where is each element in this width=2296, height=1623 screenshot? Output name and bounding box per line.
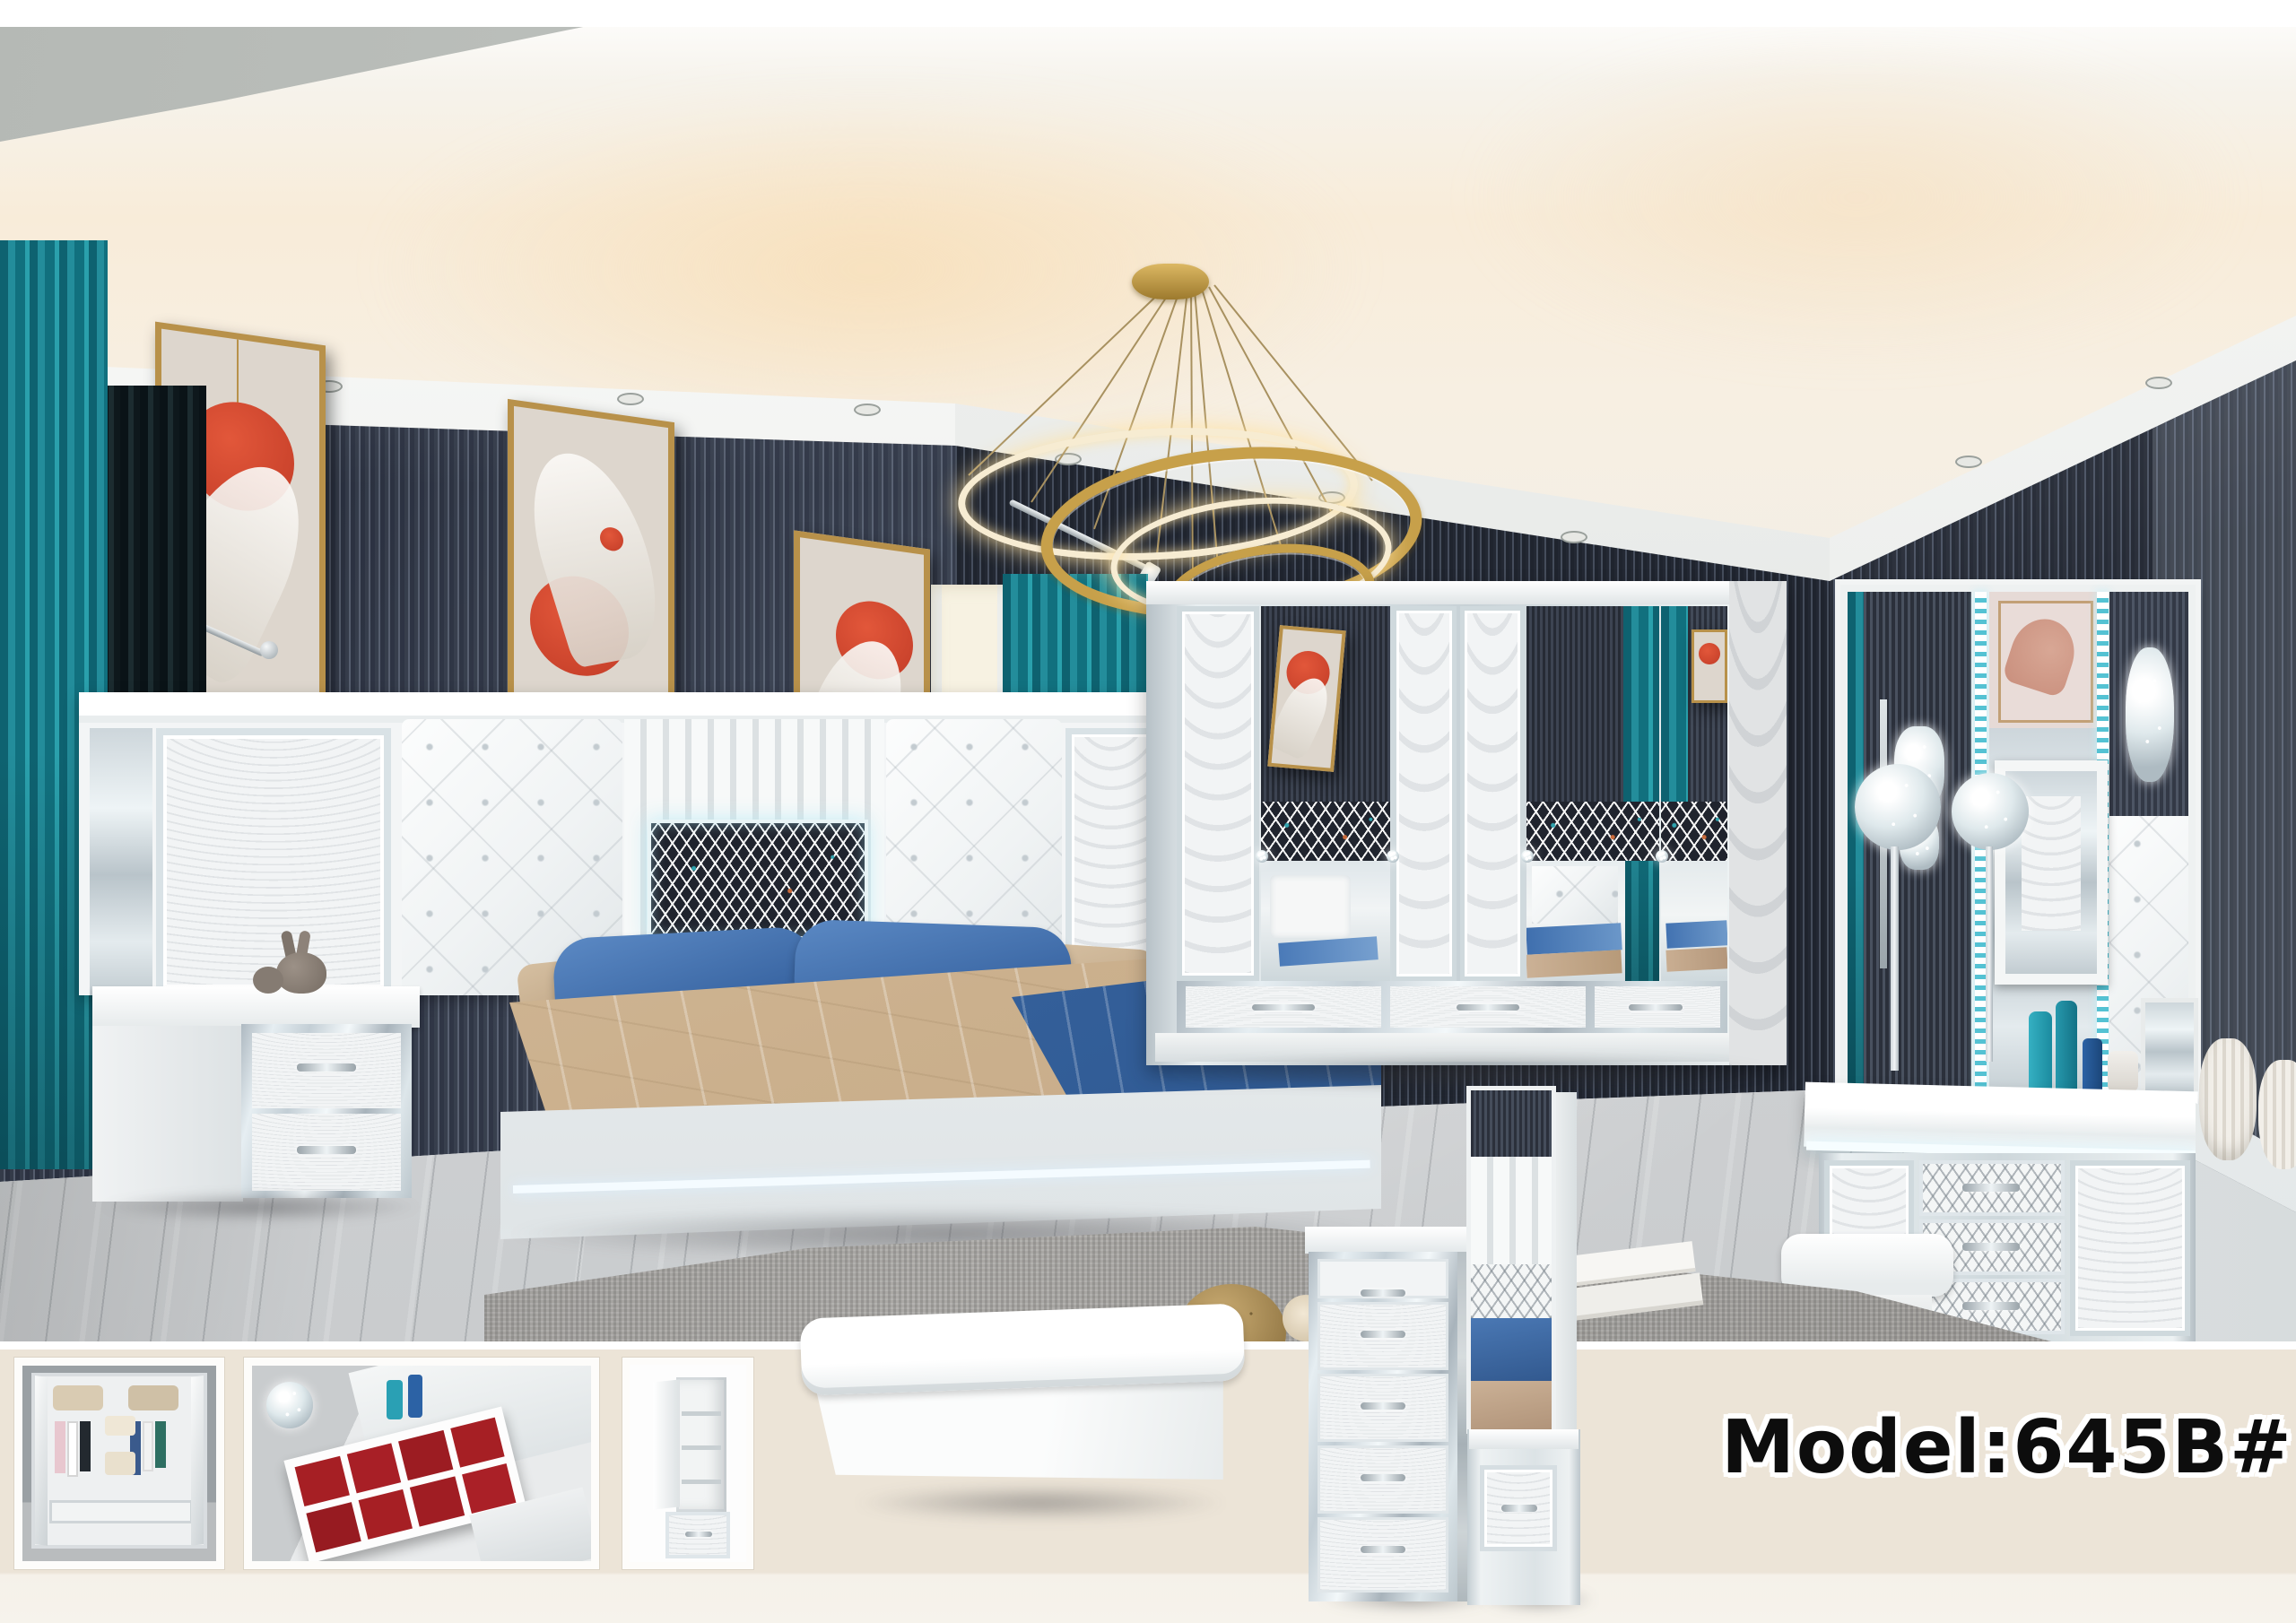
bedroom-showroom-photo: Model:645B# <box>0 0 2296 1623</box>
crystal-stand-stem <box>1986 846 1993 1062</box>
wardrobe-door-mirror-2 <box>1526 606 1659 981</box>
drawer-handle-icon <box>1252 1004 1315 1011</box>
five-drawer-chest <box>1305 1227 1493 1603</box>
wardrobe-shadow <box>1157 1055 1785 1090</box>
crystal-candle-stand <box>1952 773 2029 850</box>
jar-white-icon <box>2108 1051 2138 1092</box>
spotlight-icon <box>854 404 881 416</box>
drawer-handle-icon <box>1962 1243 2020 1251</box>
spotlight-icon <box>1955 456 1982 468</box>
spotlight-icon <box>1561 531 1587 543</box>
nightstand-side <box>92 1026 243 1202</box>
drawer-handle-icon <box>297 1063 356 1072</box>
curtain-rod-finial-icon <box>260 641 278 659</box>
crystal-knob-icon <box>1656 850 1668 863</box>
vase-white-icon <box>2199 1038 2257 1160</box>
bottle-teal-icon <box>2056 1001 2077 1092</box>
nightstand-left <box>92 986 420 1202</box>
wardrobe-door-wave-3 <box>1460 606 1525 981</box>
drawer-handle-icon <box>297 1146 356 1154</box>
mirror-stand-glass <box>1471 1090 1552 1429</box>
drawer-handle-icon <box>1457 1004 1519 1011</box>
wardrobe-door-mirror-3 <box>1661 606 1727 981</box>
vanity-door-right <box>2070 1160 2190 1336</box>
model-number-text: Model:645B# <box>1721 1405 2293 1490</box>
wardrobe-side-panel <box>1729 581 1787 1065</box>
drawer-handle-icon <box>1629 1004 1683 1011</box>
wardrobe-door-mirror-1 <box>1261 606 1390 981</box>
ceiling-top-white <box>0 0 2296 27</box>
wardrobe <box>1146 581 1787 1065</box>
crystal-candle-stand <box>1855 764 1941 850</box>
thumbnail-drawer-organizer <box>244 1358 599 1569</box>
leaning-mirror-icon <box>2145 1002 2194 1092</box>
drawer-handle-icon <box>1962 1184 2020 1192</box>
headboard-mirror-strip-left <box>90 728 152 995</box>
storage-bench <box>801 1311 1249 1499</box>
mirror-stand <box>1467 1087 1580 1607</box>
model-caption: Model:645B# <box>1774 1395 2240 1499</box>
vase-white-icon <box>2258 1060 2296 1169</box>
rabbit-figurine <box>253 931 330 995</box>
crystal-knob-icon <box>1387 850 1399 863</box>
chandelier-canopy <box>1132 264 1209 299</box>
crystal-stand-stem <box>1891 846 1899 1071</box>
nightstand-shadow <box>99 1191 422 1223</box>
mirror-stand-base <box>1467 1429 1580 1605</box>
wardrobe-top-rail <box>1146 581 1787 604</box>
drawer-handle-icon <box>1962 1302 2020 1310</box>
spotlight-icon <box>2145 377 2172 389</box>
spotlight-icon <box>617 393 644 405</box>
crystal-pendant-icon <box>2126 647 2174 782</box>
ceiling-glow-right <box>1471 36 2242 359</box>
bottle-teal-icon <box>2029 1011 2052 1092</box>
crystal-knob-icon <box>1256 850 1268 863</box>
thumbnail-wardrobe-interior <box>14 1358 224 1569</box>
bottle-blue-icon <box>2083 1038 2102 1092</box>
crystal-knob-icon <box>1521 850 1534 863</box>
thumbnail-side-cabinet <box>622 1358 753 1569</box>
wardrobe-door-wave-1 <box>1177 606 1259 981</box>
vanity-mirror-art-reflection <box>1989 592 2097 728</box>
wardrobe-door-wave-2 <box>1392 606 1457 981</box>
